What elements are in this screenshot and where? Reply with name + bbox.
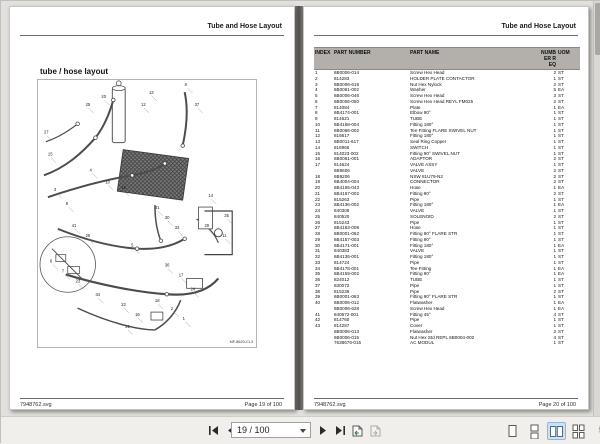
diagram-reference-label: MF-8620-CL3 <box>230 340 253 344</box>
cell-part-number: 7638676-015 <box>333 340 409 346</box>
callout-number: 21 <box>125 324 130 329</box>
footer-rule <box>20 398 284 399</box>
single-page-view-icon <box>505 424 520 439</box>
page-header-title: Tube and Hose Layout <box>501 23 576 30</box>
page-number-input[interactable]: 19 / 100 <box>231 422 311 438</box>
cell-index <box>314 340 333 346</box>
tube-hose-diagram: 2025131283727154101939313033412614352911… <box>37 79 257 348</box>
page-number-value: 19 / 100 <box>237 425 270 435</box>
callout-number: 31 <box>155 205 160 210</box>
col-header-part-name: PART NAME <box>409 48 540 70</box>
page-gap-shadow <box>295 6 303 410</box>
callout-number: 22 <box>121 302 126 307</box>
callout-number: 36 <box>165 263 170 268</box>
table-row: 7638676-015AC MODUL1ST <box>314 340 580 346</box>
cell-number-req: 1 <box>540 340 557 346</box>
next-view-icon <box>368 424 382 438</box>
navigation-toolbar: 19 / 100 <box>1 416 600 444</box>
callout-number: 23 <box>76 278 81 283</box>
cylinder-component <box>112 81 125 143</box>
col-header-index: INDEX <box>314 48 333 70</box>
col-header-part-number: PART NUMBER <box>333 48 409 70</box>
facing-continuous-view-icon <box>571 424 586 439</box>
callout-number: 14 <box>208 193 213 198</box>
footer-filename: 7948762.svg <box>20 402 52 408</box>
next-view-button[interactable] <box>366 422 383 439</box>
first-page-icon <box>207 424 220 437</box>
callout-number: 16 <box>135 312 140 317</box>
col-header-number-req: NUMBER REQ <box>540 48 557 70</box>
header-rule <box>314 35 578 36</box>
footer-page-number: Page 19 of 100 <box>245 402 282 408</box>
callout-number: 11 <box>222 233 227 238</box>
callout-number: 30 <box>165 215 170 220</box>
diagram-art: 2025131283727154101939313033412614352911… <box>38 80 256 347</box>
chevron-down-icon <box>300 429 306 433</box>
hose-lines <box>44 92 218 330</box>
callout-number: 29 <box>204 223 209 228</box>
table-header-row: INDEX PART NUMBER PART NAME NUMBER REQ U… <box>314 48 580 70</box>
callout-number: 12 <box>141 102 146 107</box>
callout-number: 33 <box>175 225 180 230</box>
callout-number: 24 <box>191 286 196 291</box>
callout-number: 19 <box>121 185 126 190</box>
footer-filename: 7948762.svg <box>314 402 346 408</box>
callout-number: 10 <box>105 179 110 184</box>
pdf-viewer-window: Tube and Hose Layout tube / hose layout <box>0 0 600 443</box>
callout-number: 3 <box>54 187 57 192</box>
callout-number: 5 <box>131 243 134 248</box>
vertical-scrollbar[interactable] <box>593 1 600 416</box>
next-page-button[interactable] <box>315 422 332 439</box>
callout-number: 2 <box>171 306 174 311</box>
callout-number: 25 <box>86 102 91 107</box>
callout-number: 37 <box>195 102 200 107</box>
page-20: Tube and Hose Layout INDEX PART NUMBER P… <box>303 6 589 410</box>
previous-view-icon <box>350 424 364 438</box>
callout-number: 34 <box>95 292 100 297</box>
first-page-button[interactable] <box>205 422 222 439</box>
callout-number: 41 <box>72 223 77 228</box>
facing-continuous-view-button[interactable] <box>569 422 588 440</box>
callout-number: 1 <box>183 316 186 321</box>
scrollbar-thumb[interactable] <box>595 3 600 55</box>
callout-number: 17 <box>179 272 184 277</box>
callout-number: 8 <box>185 82 188 87</box>
header-rule <box>20 35 284 36</box>
facing-view-button[interactable] <box>547 422 566 440</box>
single-page-view-button[interactable] <box>503 422 522 440</box>
detail-circle <box>40 237 95 292</box>
callout-number: 35 <box>224 213 229 218</box>
parts-table: INDEX PART NUMBER PART NAME NUMBER REQ U… <box>314 47 580 346</box>
continuous-view-button[interactable] <box>525 422 544 440</box>
callout-number: 7 <box>62 268 65 273</box>
callout-number: 20 <box>101 94 106 99</box>
last-page-icon <box>334 424 347 437</box>
callout-number: 13 <box>149 90 154 95</box>
callout-number: 6 <box>50 259 53 264</box>
last-page-button[interactable] <box>332 422 349 439</box>
callout-number: 26 <box>86 233 91 238</box>
page-19: Tube and Hose Layout tube / hose layout <box>9 6 295 410</box>
page-header-title: Tube and Hose Layout <box>207 23 282 30</box>
next-page-icon <box>317 424 330 437</box>
callout-number: 27 <box>44 130 49 135</box>
figure-title: tube / hose layout <box>40 67 108 76</box>
callout-number: 9 <box>66 201 69 206</box>
cell-uom: ST <box>557 340 580 346</box>
footer-rule <box>314 398 578 399</box>
callout-number: 15 <box>48 152 53 157</box>
facing-view-icon <box>549 424 564 439</box>
footer-page-number: Page 20 of 100 <box>539 402 576 408</box>
callout-number: 18 <box>155 298 160 303</box>
cell-part-name: AC MODUL <box>409 340 540 346</box>
grille-plate <box>117 150 188 201</box>
document-canvas[interactable]: Tube and Hose Layout tube / hose layout <box>1 1 600 416</box>
col-header-uom: UOM <box>557 48 580 70</box>
previous-view-button[interactable] <box>348 422 365 439</box>
callout-number: 4 <box>90 167 93 172</box>
continuous-view-icon <box>527 424 542 439</box>
